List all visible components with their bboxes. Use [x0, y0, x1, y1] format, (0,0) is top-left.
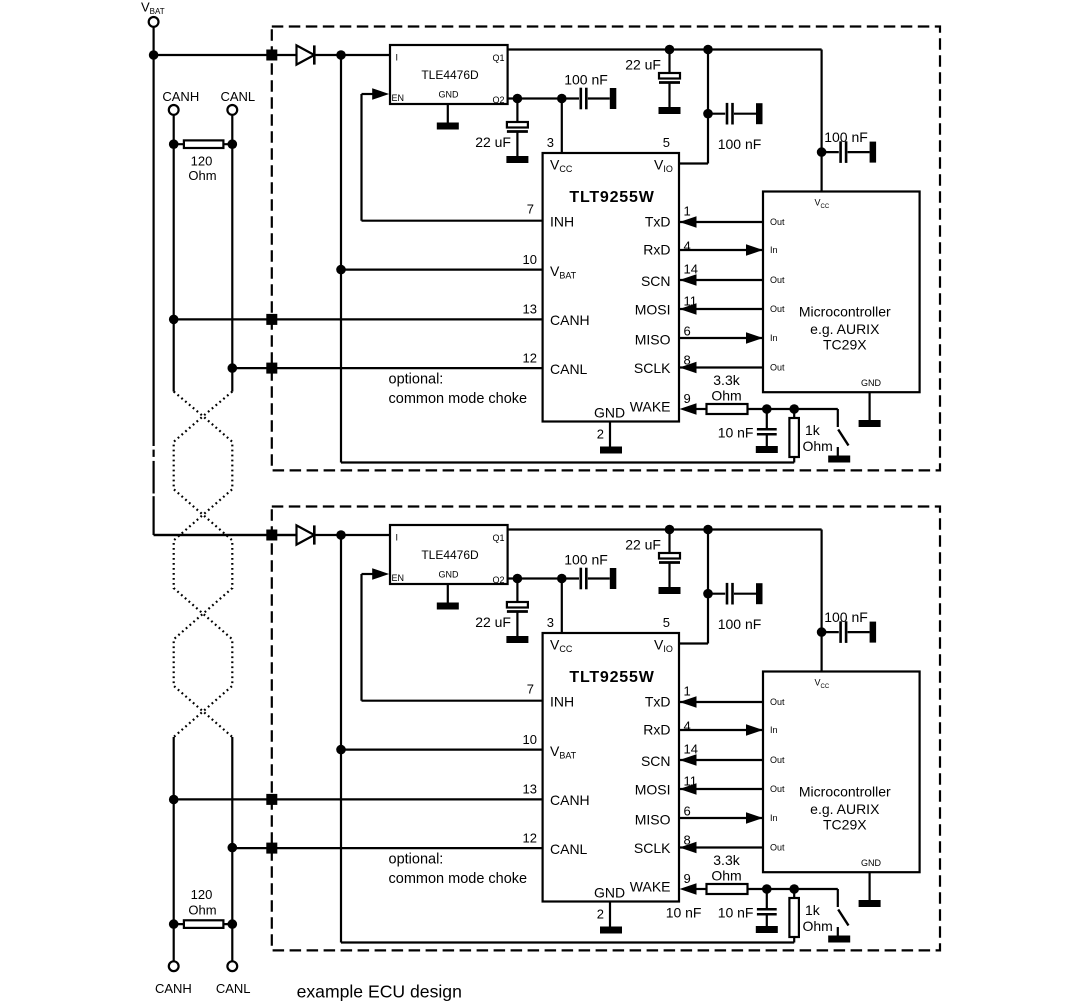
- svg-text:SCLK: SCLK: [634, 360, 671, 376]
- svg-text:6: 6: [684, 324, 691, 339]
- svg-text:SCLK: SCLK: [634, 840, 671, 856]
- svg-text:12: 12: [523, 831, 537, 846]
- svg-text:CANL: CANL: [550, 841, 588, 857]
- svg-text:Q2: Q2: [492, 95, 504, 105]
- svg-text:Microcontroller: Microcontroller: [799, 784, 891, 800]
- svg-text:TC29X: TC29X: [823, 817, 867, 833]
- svg-text:8: 8: [684, 353, 691, 368]
- svg-text:10 nF: 10 nF: [718, 905, 754, 921]
- svg-text:10: 10: [523, 252, 537, 267]
- svg-text:Ohm: Ohm: [803, 438, 833, 454]
- svg-text:I: I: [396, 53, 399, 63]
- svg-text:11: 11: [684, 774, 698, 789]
- svg-text:GND: GND: [439, 90, 460, 100]
- svg-text:e.g. AURIX: e.g. AURIX: [810, 321, 880, 337]
- svg-text:EN: EN: [392, 93, 405, 103]
- svg-text:Ohm: Ohm: [711, 868, 741, 884]
- svg-text:I: I: [396, 533, 399, 543]
- svg-text:GND: GND: [594, 885, 625, 901]
- svg-text:CANH: CANH: [550, 312, 590, 328]
- svg-text:MISO: MISO: [635, 812, 671, 828]
- svg-text:Q1: Q1: [492, 53, 504, 63]
- svg-text:TxD: TxD: [645, 694, 671, 710]
- svg-text:In: In: [770, 725, 778, 735]
- svg-text:7: 7: [527, 682, 534, 697]
- svg-text:Ohm: Ohm: [711, 388, 741, 404]
- svg-text:e.g. AURIX: e.g. AURIX: [810, 801, 880, 817]
- svg-text:10 nF: 10 nF: [718, 425, 754, 441]
- svg-text:RxD: RxD: [643, 242, 670, 258]
- svg-text:1k: 1k: [805, 422, 821, 438]
- svg-text:MISO: MISO: [635, 332, 671, 348]
- svg-text:100 nF: 100 nF: [564, 72, 608, 88]
- svg-text:3.3k: 3.3k: [713, 372, 740, 388]
- svg-text:RxD: RxD: [643, 722, 670, 738]
- svg-text:1: 1: [684, 204, 691, 219]
- svg-text:5: 5: [663, 135, 670, 150]
- svg-text:3: 3: [547, 135, 554, 150]
- svg-text:common mode choke: common mode choke: [389, 871, 528, 887]
- svg-text:1: 1: [684, 684, 691, 699]
- svg-text:1k: 1k: [805, 902, 821, 918]
- svg-text:TLT9255W: TLT9255W: [569, 669, 654, 686]
- svg-text:120: 120: [191, 154, 213, 169]
- svg-text:10: 10: [523, 732, 537, 747]
- svg-text:example ECU design: example ECU design: [297, 982, 462, 1002]
- svg-text:100 nF: 100 nF: [718, 616, 762, 632]
- svg-text:Out: Out: [770, 363, 785, 373]
- svg-text:Ohm: Ohm: [803, 918, 833, 934]
- svg-text:3.3k: 3.3k: [713, 852, 740, 868]
- svg-text:common mode choke: common mode choke: [389, 391, 528, 407]
- svg-text:9: 9: [684, 871, 691, 886]
- svg-text:9: 9: [684, 391, 691, 406]
- svg-text:EN: EN: [392, 573, 405, 583]
- svg-text:100 nF: 100 nF: [564, 552, 608, 568]
- svg-text:Out: Out: [770, 755, 785, 765]
- svg-text:10 nF: 10 nF: [666, 905, 702, 921]
- svg-text:SCN: SCN: [641, 273, 671, 289]
- svg-text:CANH: CANH: [162, 89, 199, 104]
- svg-text:6: 6: [684, 804, 691, 819]
- svg-text:4: 4: [684, 239, 691, 254]
- svg-text:Q2: Q2: [492, 575, 504, 585]
- svg-text:WAKE: WAKE: [630, 879, 671, 895]
- svg-text:13: 13: [523, 302, 537, 317]
- svg-text:INH: INH: [550, 214, 574, 230]
- svg-text:100 nF: 100 nF: [824, 609, 868, 625]
- svg-text:Out: Out: [770, 697, 785, 707]
- svg-text:11: 11: [684, 294, 698, 309]
- svg-text:optional:: optional:: [389, 852, 444, 868]
- svg-text:CANH: CANH: [550, 792, 590, 808]
- svg-text:optional:: optional:: [389, 372, 444, 388]
- svg-text:Q1: Q1: [492, 533, 504, 543]
- svg-text:13: 13: [523, 782, 537, 797]
- svg-text:GND: GND: [594, 405, 625, 421]
- svg-text:INH: INH: [550, 694, 574, 710]
- svg-text:TxD: TxD: [645, 214, 671, 230]
- svg-text:2: 2: [597, 427, 604, 442]
- svg-text:CANL: CANL: [216, 981, 251, 996]
- svg-text:22 uF: 22 uF: [625, 537, 661, 553]
- svg-text:22 uF: 22 uF: [475, 614, 511, 630]
- svg-text:Microcontroller: Microcontroller: [799, 304, 891, 320]
- svg-text:Out: Out: [770, 304, 785, 314]
- svg-text:22 uF: 22 uF: [475, 134, 511, 150]
- svg-text:GND: GND: [861, 378, 882, 388]
- svg-text:8: 8: [684, 833, 691, 848]
- svg-text:Ohm: Ohm: [188, 903, 216, 918]
- svg-text:Out: Out: [770, 843, 785, 853]
- svg-text:CANH: CANH: [155, 981, 192, 996]
- svg-text:TC29X: TC29X: [823, 337, 867, 353]
- svg-text:MOSI: MOSI: [635, 302, 671, 318]
- svg-text:7: 7: [527, 202, 534, 217]
- svg-text:12: 12: [523, 351, 537, 366]
- svg-text:MOSI: MOSI: [635, 782, 671, 798]
- svg-text:GND: GND: [861, 858, 882, 868]
- svg-text:22 uF: 22 uF: [625, 57, 661, 73]
- svg-text:3: 3: [547, 615, 554, 630]
- svg-text:In: In: [770, 333, 778, 343]
- svg-text:Out: Out: [770, 217, 785, 227]
- svg-text:4: 4: [684, 719, 691, 734]
- svg-text:TLT9255W: TLT9255W: [569, 189, 654, 206]
- svg-text:CANL: CANL: [550, 361, 588, 377]
- svg-text:In: In: [770, 245, 778, 255]
- svg-text:14: 14: [684, 742, 698, 757]
- svg-text:GND: GND: [439, 570, 460, 580]
- svg-text:5: 5: [663, 615, 670, 630]
- svg-text:100 nF: 100 nF: [824, 129, 868, 145]
- svg-text:Out: Out: [770, 275, 785, 285]
- svg-text:120: 120: [191, 887, 213, 902]
- svg-text:14: 14: [684, 262, 698, 277]
- svg-text:TLE4476D: TLE4476D: [421, 548, 479, 562]
- svg-text:Ohm: Ohm: [188, 168, 216, 183]
- svg-text:CANL: CANL: [220, 89, 255, 104]
- svg-text:In: In: [770, 813, 778, 823]
- svg-text:TLE4476D: TLE4476D: [421, 68, 479, 82]
- svg-text:Out: Out: [770, 784, 785, 794]
- svg-text:SCN: SCN: [641, 753, 671, 769]
- svg-text:WAKE: WAKE: [630, 399, 671, 415]
- svg-text:100 nF: 100 nF: [718, 136, 762, 152]
- svg-text:2: 2: [597, 907, 604, 922]
